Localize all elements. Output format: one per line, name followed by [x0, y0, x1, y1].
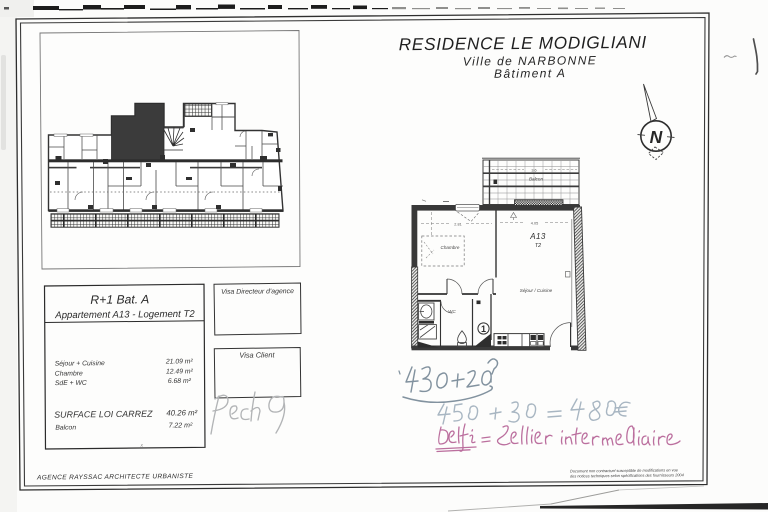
svg-text:T2: T2	[535, 243, 541, 249]
svg-text:Séjour + Cuisine: Séjour + Cuisine	[55, 360, 105, 367]
svg-text:Visa Client: Visa Client	[239, 350, 275, 359]
svg-text:Bâtiment A: Bâtiment A	[494, 66, 566, 81]
svg-text:6.68 m²: 6.68 m²	[168, 378, 192, 385]
svg-text:WC: WC	[448, 309, 456, 314]
svg-text:Balcon: Balcon	[529, 177, 543, 182]
svg-text:Balcon: Balcon	[55, 424, 76, 431]
svg-text:3.6: 3.6	[531, 169, 536, 173]
svg-text:4.05: 4.05	[531, 221, 538, 225]
svg-text:Chambre: Chambre	[55, 370, 83, 377]
svg-text:Séjour / Cuisine: Séjour / Cuisine	[520, 288, 553, 293]
svg-text:2.81: 2.81	[454, 222, 461, 226]
svg-text:12.49 m²: 12.49 m²	[166, 368, 194, 375]
svg-text:21.09 m²: 21.09 m²	[165, 358, 194, 365]
svg-text:7.22 m²: 7.22 m²	[169, 422, 193, 429]
svg-text:Visa Directeur d'agence: Visa Directeur d'agence	[221, 288, 294, 296]
svg-text:RESIDENCE LE MODIGLIANI: RESIDENCE LE MODIGLIANI	[399, 32, 647, 54]
svg-text:Appartement A13 - Logement T2: Appartement A13 - Logement T2	[54, 309, 195, 321]
svg-text:A13: A13	[529, 232, 546, 241]
svg-text:x: x	[139, 443, 143, 449]
svg-text:40.26 m²: 40.26 m²	[166, 408, 197, 417]
svg-text:1: 1	[481, 324, 486, 334]
svg-text:Chambre: Chambre	[441, 245, 460, 250]
svg-text:N: N	[650, 127, 663, 147]
svg-text:SURFACE LOI CARREZ: SURFACE LOI CARREZ	[54, 409, 153, 420]
svg-text:SdE + WC: SdE + WC	[55, 380, 87, 387]
svg-text:R+1 Bat. A: R+1 Bat. A	[90, 292, 149, 307]
